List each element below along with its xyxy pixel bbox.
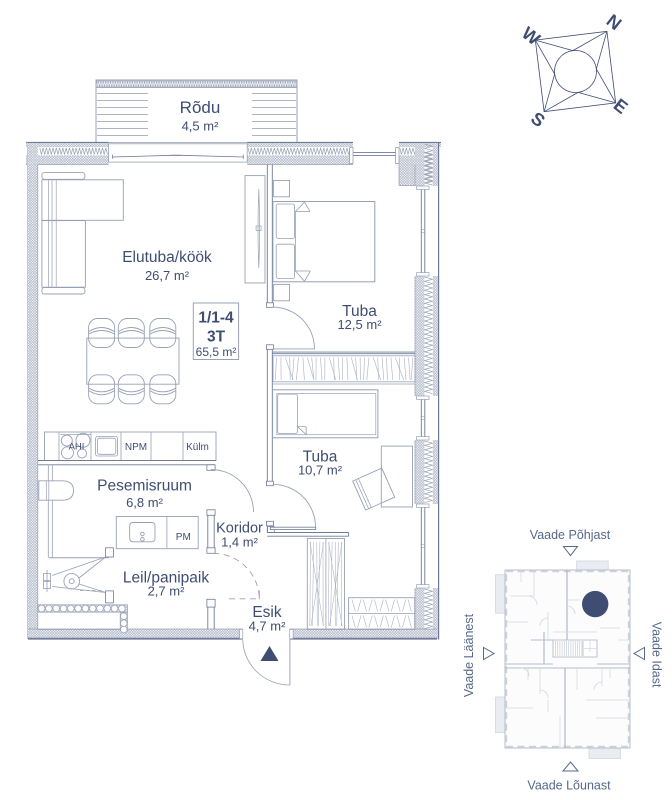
svg-text:Vaade Idast: Vaade Idast bbox=[650, 622, 664, 688]
svg-text:Rõdu: Rõdu bbox=[180, 98, 221, 117]
svg-text:AHI: AHI bbox=[69, 442, 85, 453]
svg-text:Vaade Põhjast: Vaade Põhjast bbox=[530, 528, 611, 542]
svg-text:12,5 m²: 12,5 m² bbox=[337, 317, 382, 332]
svg-text:4,5 m²: 4,5 m² bbox=[182, 119, 220, 134]
svg-text:26,7 m²: 26,7 m² bbox=[145, 268, 190, 283]
svg-text:2,7 m²: 2,7 m² bbox=[148, 584, 186, 599]
svg-text:NPM: NPM bbox=[125, 442, 147, 453]
svg-text:Vaade Läänest: Vaade Läänest bbox=[462, 613, 476, 697]
svg-text:Vaade Lõunast: Vaade Lõunast bbox=[527, 779, 611, 793]
svg-text:1/1-4: 1/1-4 bbox=[198, 310, 234, 327]
svg-text:10,7 m²: 10,7 m² bbox=[298, 463, 343, 478]
svg-text:4,7 m²: 4,7 m² bbox=[249, 619, 287, 634]
svg-text:Pesemisruum: Pesemisruum bbox=[97, 478, 192, 495]
svg-text:Külm: Külm bbox=[186, 442, 209, 453]
svg-text:3T: 3T bbox=[207, 329, 226, 346]
svg-text:65,5 m²: 65,5 m² bbox=[196, 345, 237, 359]
svg-text:Elutuba/köök: Elutuba/köök bbox=[122, 249, 212, 266]
svg-text:PM: PM bbox=[176, 532, 191, 543]
svg-text:6,8 m²: 6,8 m² bbox=[126, 495, 164, 510]
svg-text:1,4 m²: 1,4 m² bbox=[221, 535, 259, 550]
